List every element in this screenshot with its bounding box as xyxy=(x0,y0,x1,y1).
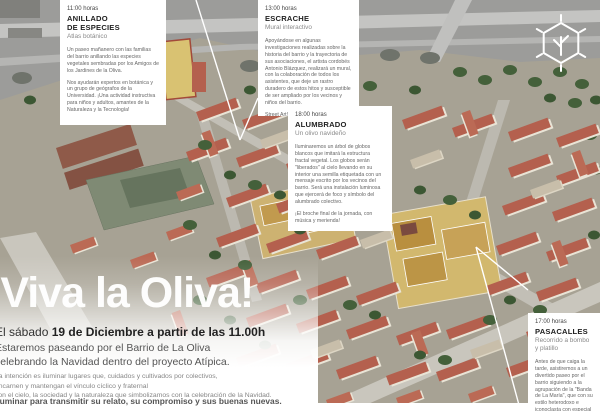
event-card-pasacalles: 17:00 horas PASACALLES Recorrido a bombo… xyxy=(528,313,600,411)
event-subtitle: Un olivo navideño xyxy=(295,130,385,138)
poster-title: ¡Viva la Oliva! xyxy=(0,272,327,315)
event-title: ESCRACHE xyxy=(265,15,352,24)
event-title: ALUMBRADO xyxy=(295,121,385,130)
event-subtitle: Recorrido a bombo y platillo xyxy=(535,337,593,353)
event-card-escrache: 13:00 horas ESCRACHE Mural interactivo A… xyxy=(258,0,359,116)
event-subtitle: Mural interactivo xyxy=(265,24,352,32)
event-card-anillado: 11:00 horas ANILLADO DE ESPECIES Atlas b… xyxy=(60,0,166,125)
event-paragraph: Antes de que caiga la tarde, asistiremos… xyxy=(535,359,593,411)
event-poster: 11:00 horas ANILLADO DE ESPECIES Atlas b… xyxy=(0,0,600,411)
event-paragraph: Apoyándose en algunas investigaciones re… xyxy=(265,38,352,107)
event-time: 17:00 horas xyxy=(535,319,593,326)
event-title: PASACALLES xyxy=(535,328,593,337)
event-subtitle: Atlas botánico xyxy=(67,33,159,41)
event-time: 18:00 horas xyxy=(295,112,385,119)
mission-line-2: encarnen y mantengan el vínculo cíclico … xyxy=(0,382,272,392)
hex-tree-logo xyxy=(531,12,591,74)
intro-line-1: Estaremos paseando por el Barrio de La O… xyxy=(0,342,210,354)
date-prefix: El sábado xyxy=(0,325,52,339)
intro-line-2: celebrando la Navidad dentro del proyect… xyxy=(0,356,230,368)
closing-line: Iluminar para transmitir su relato, su c… xyxy=(0,396,282,406)
event-time: 11:00 horas xyxy=(67,6,159,13)
event-title-line2: DE ESPECIES xyxy=(67,24,159,33)
event-paragraph: Nos ayudarán expertos en botánica y un g… xyxy=(67,80,159,114)
event-card-alumbrado: 18:00 horas ALUMBRADO Un olivo navideño … xyxy=(288,106,392,231)
event-time: 13:00 horas xyxy=(265,6,352,13)
event-footer: ¡El broche final de la jornada, con músi… xyxy=(295,211,385,225)
mission-line-1: La intención es iluminar lugares que, cu… xyxy=(0,372,272,382)
event-paragraph: Un paseo mañanero con las familias del b… xyxy=(67,47,159,74)
date-bold: 19 de Diciembre a partir de las 11.00h xyxy=(52,325,265,339)
event-paragraph: Iluminaremos un árbol de globos blancos … xyxy=(295,144,385,206)
date-line: El sábado 19 de Diciembre a partir de la… xyxy=(0,325,265,339)
